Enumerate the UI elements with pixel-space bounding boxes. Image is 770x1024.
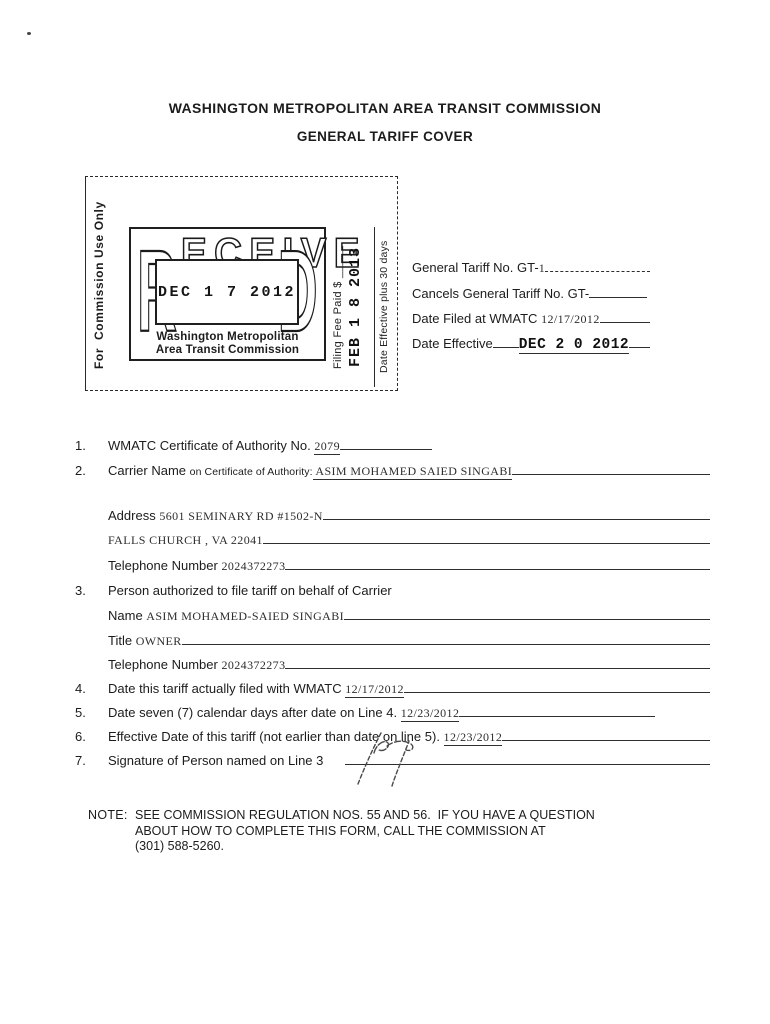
field-cancels-tariff-no: Cancels General Tariff No. GT- [412, 286, 650, 301]
address-value: 5601 SEMINARY RD #1502-N [159, 509, 323, 524]
line-label: Date seven (7) calendar days after date … [108, 705, 401, 720]
address2-value: FALLS CHURCH , VA 22041 [108, 533, 263, 548]
commission-use-label: For Commission Use Only [92, 199, 106, 371]
line-label: WMATC Certificate of Authority No. [108, 438, 314, 453]
box-divider [374, 227, 375, 387]
scan-speck [27, 32, 31, 35]
carrier-name-value: ASIM MOHAMED SAIED SINGABI [313, 464, 512, 480]
line-sublabel: on Certificate of Authority: [190, 466, 313, 478]
line-label: Carrier Name [108, 463, 190, 478]
blank-line [502, 740, 710, 741]
line-telephone-1: Telephone Number 2024372273 [108, 558, 710, 574]
line-telephone-2: Telephone Number 2024372273 [108, 657, 710, 673]
page-subtitle: GENERAL TARIFF COVER [0, 129, 770, 144]
date-effective-stamp: DEC 2 0 2012 [519, 337, 629, 354]
line6-value: 12/23/2012 [444, 730, 503, 746]
received-stamp: R ECEIVE D DEC 1 7 2012 Washington Metro… [129, 227, 326, 361]
note-block: NOTE: SEE COMMISSION REGULATION NOS. 55 … [88, 808, 645, 855]
fee-date-stamp: FEB 1 8 2013 [347, 225, 364, 389]
phone1-value: 2024372273 [221, 559, 285, 574]
line-2-carrier-name: 2. Carrier Name on Certificate of Author… [75, 463, 710, 480]
field-label: General Tariff No. GT- [412, 260, 539, 275]
blank-line [512, 474, 710, 475]
blank-line [629, 347, 650, 348]
field-label: Date Effective [412, 336, 493, 351]
certificate-no-value: 2079 [314, 439, 340, 455]
line-label: Date this tariff actually filed with WMA… [108, 681, 345, 696]
field-label: Cancels General Tariff No. GT- [412, 286, 589, 301]
line-1-certificate-no: 1. WMATC Certificate of Authority No. 20… [75, 438, 710, 455]
phone2-value: 2024372273 [221, 658, 285, 673]
person-name-value: ASIM MOHAMED-SAIED SINGABI [146, 609, 344, 624]
line4-value: 12/17/2012 [345, 682, 404, 698]
date-effective-plus-label: Date Effective plus 30 days [378, 221, 390, 393]
field-general-tariff-no: General Tariff No. GT- 1 [412, 260, 650, 276]
line-address-2: FALLS CHURCH , VA 22041 [108, 533, 710, 548]
note-body: SEE COMMISSION REGULATION NOS. 55 AND 56… [135, 808, 645, 855]
blank-line [404, 692, 710, 693]
line-label: Signature of Person named on Line 3 [108, 753, 323, 768]
field-date-effective: Date Effective DEC 2 0 2012 [412, 336, 650, 354]
line-label: Title [108, 633, 136, 648]
line-address: Address 5601 SEMINARY RD #1502-N [108, 508, 710, 524]
line-title: Title OWNER [108, 633, 710, 649]
line5-value: 12/23/2012 [401, 706, 460, 722]
filing-fee-label: Filing Fee Paid $ _____ [332, 221, 344, 393]
blank-line [459, 716, 655, 717]
blank-line [340, 449, 432, 450]
blank-line [285, 569, 710, 570]
field-value: 1 [539, 261, 545, 276]
blank-line [589, 297, 647, 298]
field-value: 12/17/2012 [541, 312, 600, 327]
stamp-org-name: Washington Metropolitan Area Transit Com… [131, 331, 324, 357]
line-name: Name ASIM MOHAMED-SAIED SINGABI [108, 608, 710, 624]
line-label: Telephone Number [108, 657, 221, 672]
line-label: Telephone Number [108, 558, 221, 573]
received-date-box: DEC 1 7 2012 [155, 259, 299, 325]
line-label: Person authorized to file tariff on beha… [108, 583, 392, 598]
line-3-authorized-person: 3. Person authorized to file tariff on b… [75, 583, 710, 598]
blank-line [182, 644, 710, 645]
blank-line [493, 347, 519, 348]
field-date-filed: Date Filed at WMATC 12/17/2012 [412, 311, 650, 327]
blank-line [600, 322, 650, 323]
blank-line [344, 619, 710, 620]
person-title-value: OWNER [136, 634, 182, 649]
note-label: NOTE: [88, 808, 135, 855]
page-title: WASHINGTON METROPOLITAN AREA TRANSIT COM… [0, 100, 770, 116]
line-label: Address [108, 508, 159, 523]
blank-line [263, 543, 710, 544]
line-5-seven-days: 5. Date seven (7) calendar days after da… [75, 705, 710, 722]
commission-use-box: For Commission Use Only R ECEIVE D DEC 1… [85, 176, 398, 391]
blank-line [323, 519, 710, 520]
line-label: Name [108, 608, 146, 623]
blank-line [285, 668, 710, 669]
line-4-date-filed: 4. Date this tariff actually filed with … [75, 681, 710, 698]
signature-scribble [332, 726, 447, 788]
received-date: DEC 1 7 2012 [158, 284, 296, 301]
blank-line [545, 271, 650, 272]
field-label: Date Filed at WMATC [412, 311, 541, 326]
tariff-cover-page: WASHINGTON METROPOLITAN AREA TRANSIT COM… [0, 0, 770, 1024]
